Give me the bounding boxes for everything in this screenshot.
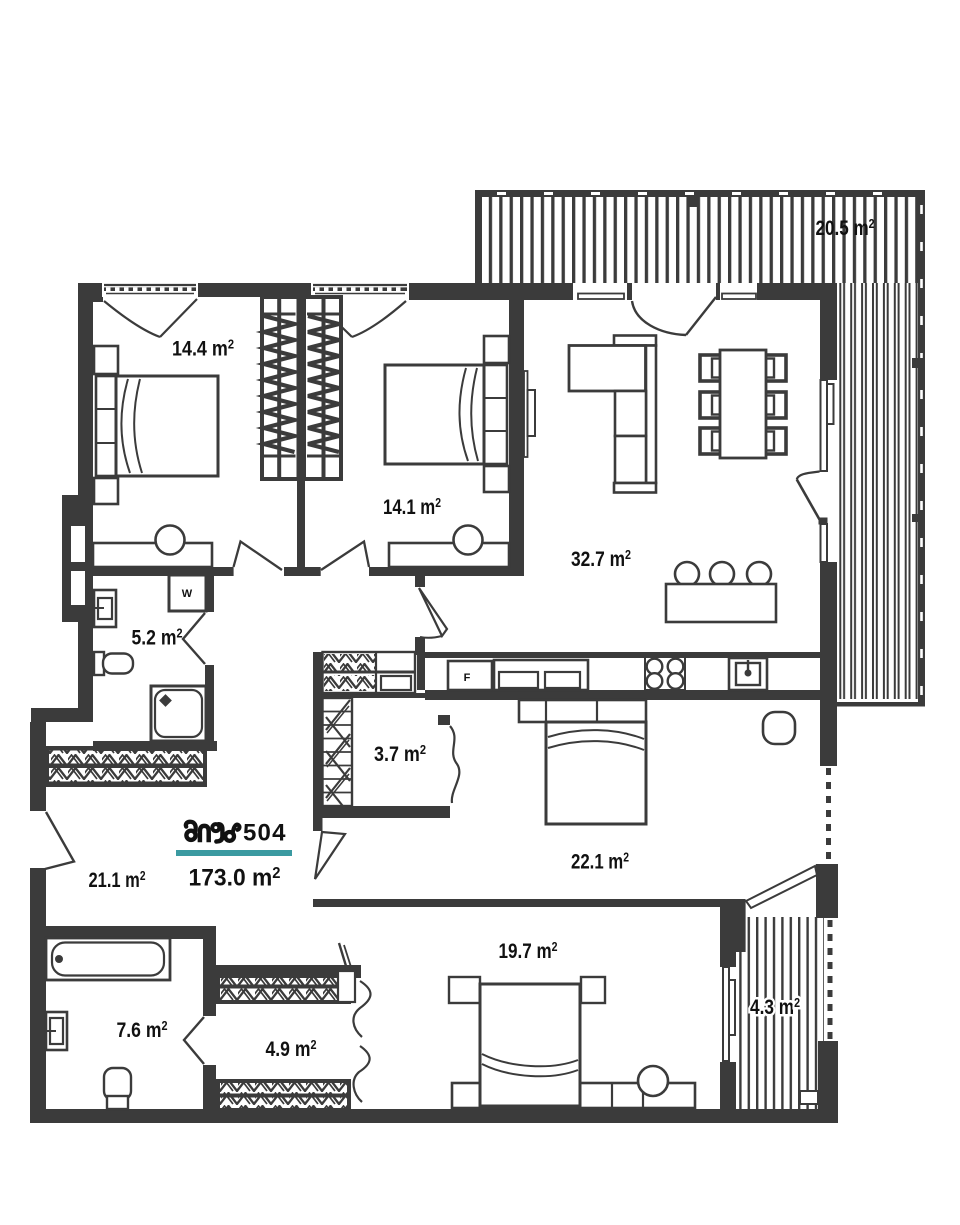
svg-text:3.7 m2: 3.7 m2 (374, 742, 426, 766)
svg-text:22.1 m2: 22.1 m2 (571, 850, 629, 874)
svg-text:173.0 m2: 173.0 m2 (189, 865, 281, 892)
svg-text:20.5 m2: 20.5 m2 (816, 216, 875, 240)
svg-text:F: F (464, 672, 471, 684)
svg-text:4.9 m2: 4.9 m2 (266, 1037, 317, 1061)
svg-text:21.1 m2: 21.1 m2 (89, 868, 146, 892)
svg-text:14.4 m2: 14.4 m2 (172, 337, 234, 361)
svg-text:14.1 m2: 14.1 m2 (383, 495, 441, 519)
svg-text:7.6 m2: 7.6 m2 (117, 1018, 168, 1042)
svg-text:32.7 m2: 32.7 m2 (571, 547, 631, 571)
svg-text:504: 504 (243, 820, 287, 847)
svg-text:W: W (182, 588, 193, 600)
svg-text:5.2 m2: 5.2 m2 (132, 626, 183, 650)
svg-text:19.7 m2: 19.7 m2 (499, 939, 558, 963)
svg-text:4.3 m2: 4.3 m2 (750, 995, 800, 1019)
